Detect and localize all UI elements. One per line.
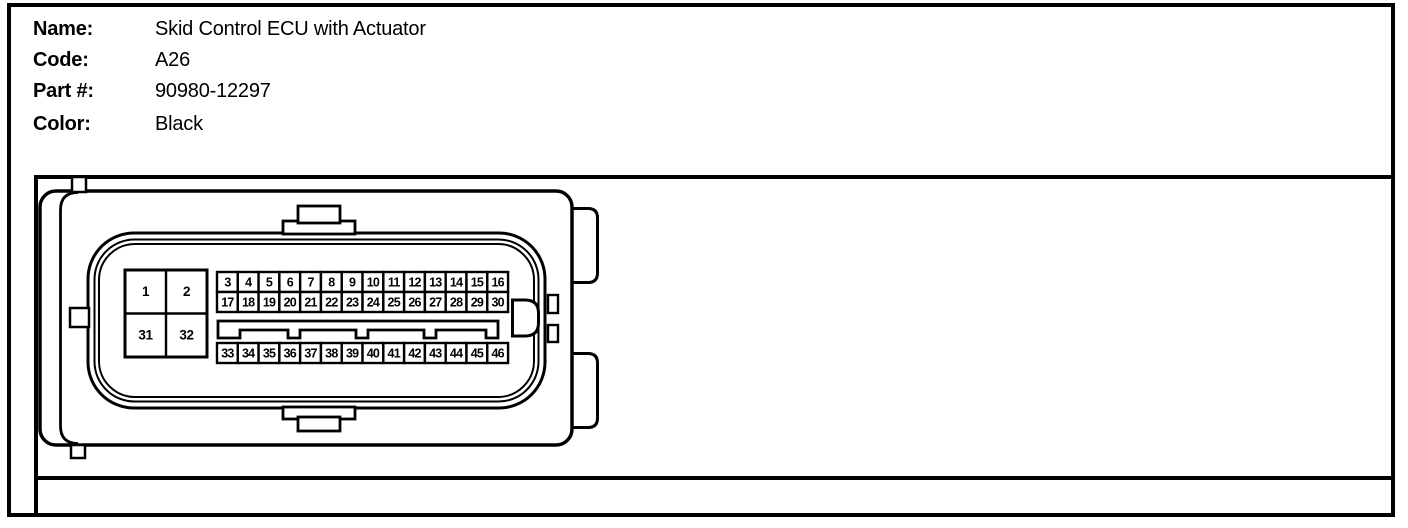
pin-number-20: 20 xyxy=(284,295,297,309)
pin-number-27: 27 xyxy=(429,295,442,309)
pin-number-33: 33 xyxy=(221,346,234,360)
pin-number-41: 41 xyxy=(388,346,401,360)
pin-number-38: 38 xyxy=(325,346,338,360)
header-row-part: Part #:90980-12297 xyxy=(33,80,271,103)
connector-diagram: 3456789101112131415161718192021222324252… xyxy=(34,175,694,516)
pin-number-39: 39 xyxy=(346,346,359,360)
pin-number-14: 14 xyxy=(450,275,463,289)
pin-number-13: 13 xyxy=(429,275,442,289)
pin-number-1: 1 xyxy=(142,284,150,299)
pin-number-2: 2 xyxy=(183,284,190,299)
left-key-tab xyxy=(70,308,89,327)
code-value: A26 xyxy=(155,49,190,71)
pin-number-25: 25 xyxy=(388,295,401,309)
pin-number-45: 45 xyxy=(471,346,484,360)
bottom-mount-notch xyxy=(71,445,85,458)
pin-number-6: 6 xyxy=(287,275,294,289)
top-mount-notch xyxy=(72,177,86,192)
pin-number-16: 16 xyxy=(492,275,505,289)
name-value: Skid Control ECU with Actuator xyxy=(155,18,426,40)
pin-number-31: 31 xyxy=(138,328,153,343)
pin-number-43: 43 xyxy=(429,346,442,360)
pin-number-34: 34 xyxy=(242,346,255,360)
pin-number-3: 3 xyxy=(224,275,231,289)
pin-number-10: 10 xyxy=(367,275,380,289)
pin-number-4: 4 xyxy=(245,275,252,289)
pin-number-8: 8 xyxy=(328,275,335,289)
pin-number-26: 26 xyxy=(408,295,421,309)
pin-number-29: 29 xyxy=(471,295,484,309)
pin-number-22: 22 xyxy=(325,295,338,309)
pin-number-28: 28 xyxy=(450,295,463,309)
pin-cells-group: 3456789101112131415161718192021222324252… xyxy=(217,272,508,363)
top-polarize-tab xyxy=(298,206,340,223)
corner-pin-grid xyxy=(125,270,207,357)
pin-number-12: 12 xyxy=(408,275,421,289)
pin-number-9: 9 xyxy=(349,275,356,289)
top-right-wing xyxy=(573,209,598,283)
color-label: Color: xyxy=(33,113,155,136)
right-small-tab-bottom xyxy=(548,325,558,342)
header-row-code: Code:A26 xyxy=(33,49,190,72)
bottom-polarize-tab xyxy=(298,417,340,431)
pin-number-46: 46 xyxy=(492,346,505,360)
key-rail xyxy=(218,321,498,338)
pin-number-19: 19 xyxy=(263,295,276,309)
right-small-tab-top xyxy=(548,295,558,313)
color-value: Black xyxy=(155,113,203,135)
pin-number-23: 23 xyxy=(346,295,359,309)
pin-number-40: 40 xyxy=(367,346,380,360)
connector-spec-page: Name:Skid Control ECU with Actuator Code… xyxy=(0,0,1408,528)
pin-number-17: 17 xyxy=(221,295,234,309)
pin-number-11: 11 xyxy=(388,275,400,289)
header-row-color: Color:Black xyxy=(33,113,203,136)
pin-number-36: 36 xyxy=(284,346,297,360)
pin-number-24: 24 xyxy=(367,295,380,309)
pin-number-44: 44 xyxy=(450,346,463,360)
bottom-right-wing xyxy=(573,354,598,428)
name-label: Name: xyxy=(33,18,155,41)
part-value: 90980-12297 xyxy=(155,80,271,102)
part-label: Part #: xyxy=(33,80,155,103)
pin-number-18: 18 xyxy=(242,295,255,309)
pin-number-5: 5 xyxy=(266,275,273,289)
pin-number-30: 30 xyxy=(492,295,505,309)
header-row-name: Name:Skid Control ECU with Actuator xyxy=(33,18,426,41)
right-latch xyxy=(513,300,539,336)
pin-number-37: 37 xyxy=(304,346,317,360)
pin-number-7: 7 xyxy=(307,275,314,289)
pin-number-21: 21 xyxy=(304,295,317,309)
code-label: Code: xyxy=(33,49,155,72)
pin-number-35: 35 xyxy=(263,346,276,360)
pin-number-32: 32 xyxy=(179,328,193,343)
pin-number-15: 15 xyxy=(471,275,484,289)
pin-number-42: 42 xyxy=(408,346,421,360)
